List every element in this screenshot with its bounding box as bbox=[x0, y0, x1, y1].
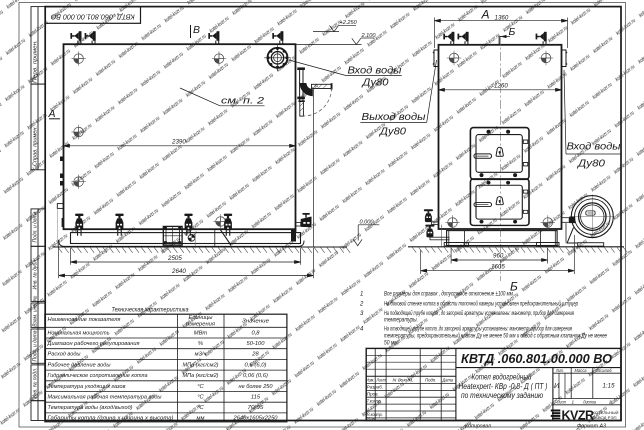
svg-text:Пров.: Пров. bbox=[367, 392, 379, 397]
svg-text:А: А bbox=[48, 108, 56, 120]
svg-text:+2.250: +2.250 bbox=[340, 20, 358, 26]
svg-text:2505: 2505 bbox=[167, 255, 182, 262]
svg-text:Температура воды (вход/выход): Температура воды (вход/выход) bbox=[48, 405, 133, 411]
svg-text:Единицы: Единицы bbox=[189, 315, 214, 321]
svg-text:Б: Б bbox=[509, 26, 516, 38]
svg-text:1605: 1605 bbox=[491, 263, 505, 270]
svg-text:ЗАВОД РЭП: ЗАВОД РЭП bbox=[593, 415, 617, 420]
svg-text:см. п. 2: см. п. 2 bbox=[221, 96, 265, 107]
svg-text:м3/ч: м3/ч bbox=[195, 352, 207, 358]
svg-text:Подп. и дата: Подп. и дата bbox=[33, 211, 39, 242]
svg-text:0,8: 0,8 bbox=[251, 330, 260, 336]
svg-text:1260: 1260 bbox=[494, 83, 508, 90]
svg-text:50-100: 50-100 bbox=[247, 341, 266, 347]
svg-text:В: В bbox=[193, 24, 200, 36]
svg-text:не более 250: не более 250 bbox=[239, 384, 274, 390]
svg-text:Лит.: Лит. bbox=[555, 368, 564, 373]
svg-text:Котел водогрейный: Котел водогрейный bbox=[472, 373, 533, 382]
svg-text:мм: мм bbox=[197, 416, 205, 422]
svg-text:Копировал: Копировал bbox=[465, 423, 491, 429]
svg-text:Вход воды: Вход воды bbox=[567, 141, 622, 152]
svg-text:Heatexpert- КВр -0,8- Д ( ПТ ): Heatexpert- КВр -0,8- Д ( ПТ ) bbox=[459, 382, 548, 391]
svg-text:2: 2 bbox=[608, 400, 612, 405]
svg-text:Лист: Лист bbox=[556, 400, 566, 405]
svg-text:КВТД .060.801.00.000 ВО: КВТД .060.801.00.000 ВО bbox=[50, 13, 134, 22]
svg-text:2390: 2390 bbox=[171, 138, 186, 145]
svg-text:Выход воды: Выход воды bbox=[362, 112, 427, 123]
svg-text:Подп. и дата: Подп. и дата bbox=[33, 330, 39, 361]
svg-text:МВт: МВт bbox=[194, 330, 208, 336]
svg-text:Т.контр.: Т.контр. bbox=[367, 398, 382, 403]
svg-text:Масштаб: Масштаб bbox=[596, 368, 612, 373]
svg-text:Гидравлическое сопротивление к: Гидравлическое сопротивление котла bbox=[48, 373, 149, 379]
svg-text:Максимальная рабочая температу: Максимальная рабочая температура воды bbox=[48, 395, 163, 401]
svg-text:Масса: Масса bbox=[575, 368, 587, 373]
svg-text:Разраб.: Разраб. bbox=[367, 385, 383, 390]
svg-text:Значение: Значение bbox=[242, 319, 270, 325]
svg-text:по техническому заданию: по техническому заданию bbox=[461, 391, 543, 400]
svg-text:Ду80: Ду80 bbox=[379, 127, 407, 138]
svg-text:Рабочее давление воды: Рабочее давление воды bbox=[48, 362, 112, 368]
svg-text:Номинальная мощность: Номинальная мощность bbox=[48, 330, 110, 336]
svg-text:%: % bbox=[198, 341, 203, 347]
svg-text:Изм.: Изм. bbox=[366, 377, 375, 382]
svg-text:Инв. № дубл.: Инв. № дубл. bbox=[33, 259, 39, 290]
svg-text:Ду80: Ду80 bbox=[361, 78, 389, 89]
svg-text:Утв.: Утв. bbox=[367, 416, 376, 421]
svg-text:Наименование показателя: Наименование показателя bbox=[48, 317, 121, 323]
svg-text:Вход воды: Вход воды bbox=[348, 65, 403, 76]
svg-text:Взам. инв. №: Взам. инв. № bbox=[33, 295, 39, 327]
svg-text:°С: °С bbox=[197, 384, 204, 390]
svg-text:2.100: 2.100 bbox=[361, 33, 377, 39]
svg-text:На боковой стенке котла в обла: На боковой стенке котла в области топочн… bbox=[384, 301, 578, 308]
svg-text:2640х1605х2250: 2640х1605х2250 bbox=[233, 416, 279, 422]
svg-text:На отводящей трубе котла ,до з: На отводящей трубе котла ,до запорной ар… bbox=[384, 326, 573, 333]
svg-text:Техническая характеристика: Техническая характеристика bbox=[112, 307, 189, 314]
svg-text:115: 115 bbox=[251, 395, 261, 401]
svg-text:Лист: Лист bbox=[376, 377, 386, 382]
svg-text:1: 1 bbox=[572, 400, 575, 405]
svg-text:0,06 (0,6): 0,06 (0,6) bbox=[243, 373, 268, 379]
svg-text:N докум.: N докум. bbox=[393, 377, 414, 382]
svg-text:70/95: 70/95 bbox=[248, 405, 265, 411]
svg-text:0.000: 0.000 bbox=[360, 220, 375, 226]
svg-text:2640: 2640 bbox=[171, 268, 186, 275]
svg-text:Подп.: Подп. bbox=[425, 377, 437, 382]
svg-text:960: 960 bbox=[493, 253, 504, 260]
svg-text:Ду80: Ду80 bbox=[577, 159, 606, 170]
svg-text:Инв. № подл.: Инв. № подл. bbox=[33, 368, 39, 399]
svg-text:1: 1 bbox=[360, 291, 363, 297]
svg-text:Справ. примен.: Справ. примен. bbox=[33, 126, 39, 166]
svg-text:°С: °С bbox=[197, 405, 204, 411]
svg-text:2: 2 bbox=[359, 302, 364, 308]
svg-text:Перв. примен.: Перв. примен. bbox=[33, 40, 39, 83]
svg-text:0,6 (6,0): 0,6 (6,0) bbox=[245, 362, 267, 368]
svg-text:измерения: измерения bbox=[186, 321, 215, 327]
svg-text:Диапазон рабочего регулировани: Диапазон рабочего регулирования bbox=[47, 341, 140, 347]
svg-text:Все размеры для справок , допу: Все размеры для справок , допустимое отк… bbox=[384, 291, 514, 297]
svg-text:температуры, предохранительный: температуры, предохранительный клапан Ду… bbox=[384, 332, 607, 339]
svg-text:1:15: 1:15 bbox=[602, 383, 615, 390]
svg-text:50 мм.: 50 мм. bbox=[384, 340, 399, 346]
svg-text:МПа (кгс/см2): МПа (кгс/см2) bbox=[183, 362, 219, 368]
svg-text:Габариты котла (длина х ширина: Габариты котла (длина х ширина х высота) bbox=[48, 416, 174, 422]
svg-text:1360: 1360 bbox=[495, 15, 509, 22]
svg-text:Формат А3: Формат А3 bbox=[577, 423, 606, 429]
svg-text:МПа (кгс/см2): МПа (кгс/см2) bbox=[183, 373, 219, 379]
svg-text:°С: °С bbox=[197, 395, 204, 401]
svg-text:Листов: Листов bbox=[582, 400, 596, 405]
svg-text:А: А bbox=[481, 8, 490, 22]
svg-text:28: 28 bbox=[251, 352, 259, 358]
svg-text:На подводящей трубе котла ,: На подводящей трубе котла , до запорной … bbox=[384, 310, 575, 317]
svg-text:KVZR: KVZR bbox=[562, 408, 595, 422]
svg-text:Расход воды: Расход воды bbox=[48, 352, 82, 358]
svg-text:КВТД .060.801.00.000 ВО: КВТД .060.801.00.000 ВО bbox=[461, 351, 613, 366]
svg-text:температуры.: температуры. bbox=[384, 317, 418, 323]
svg-text:Температура уходящих газов: Температура уходящих газов bbox=[48, 384, 126, 390]
svg-text:И: И bbox=[554, 381, 560, 390]
svg-text:Дата: Дата bbox=[442, 377, 454, 382]
